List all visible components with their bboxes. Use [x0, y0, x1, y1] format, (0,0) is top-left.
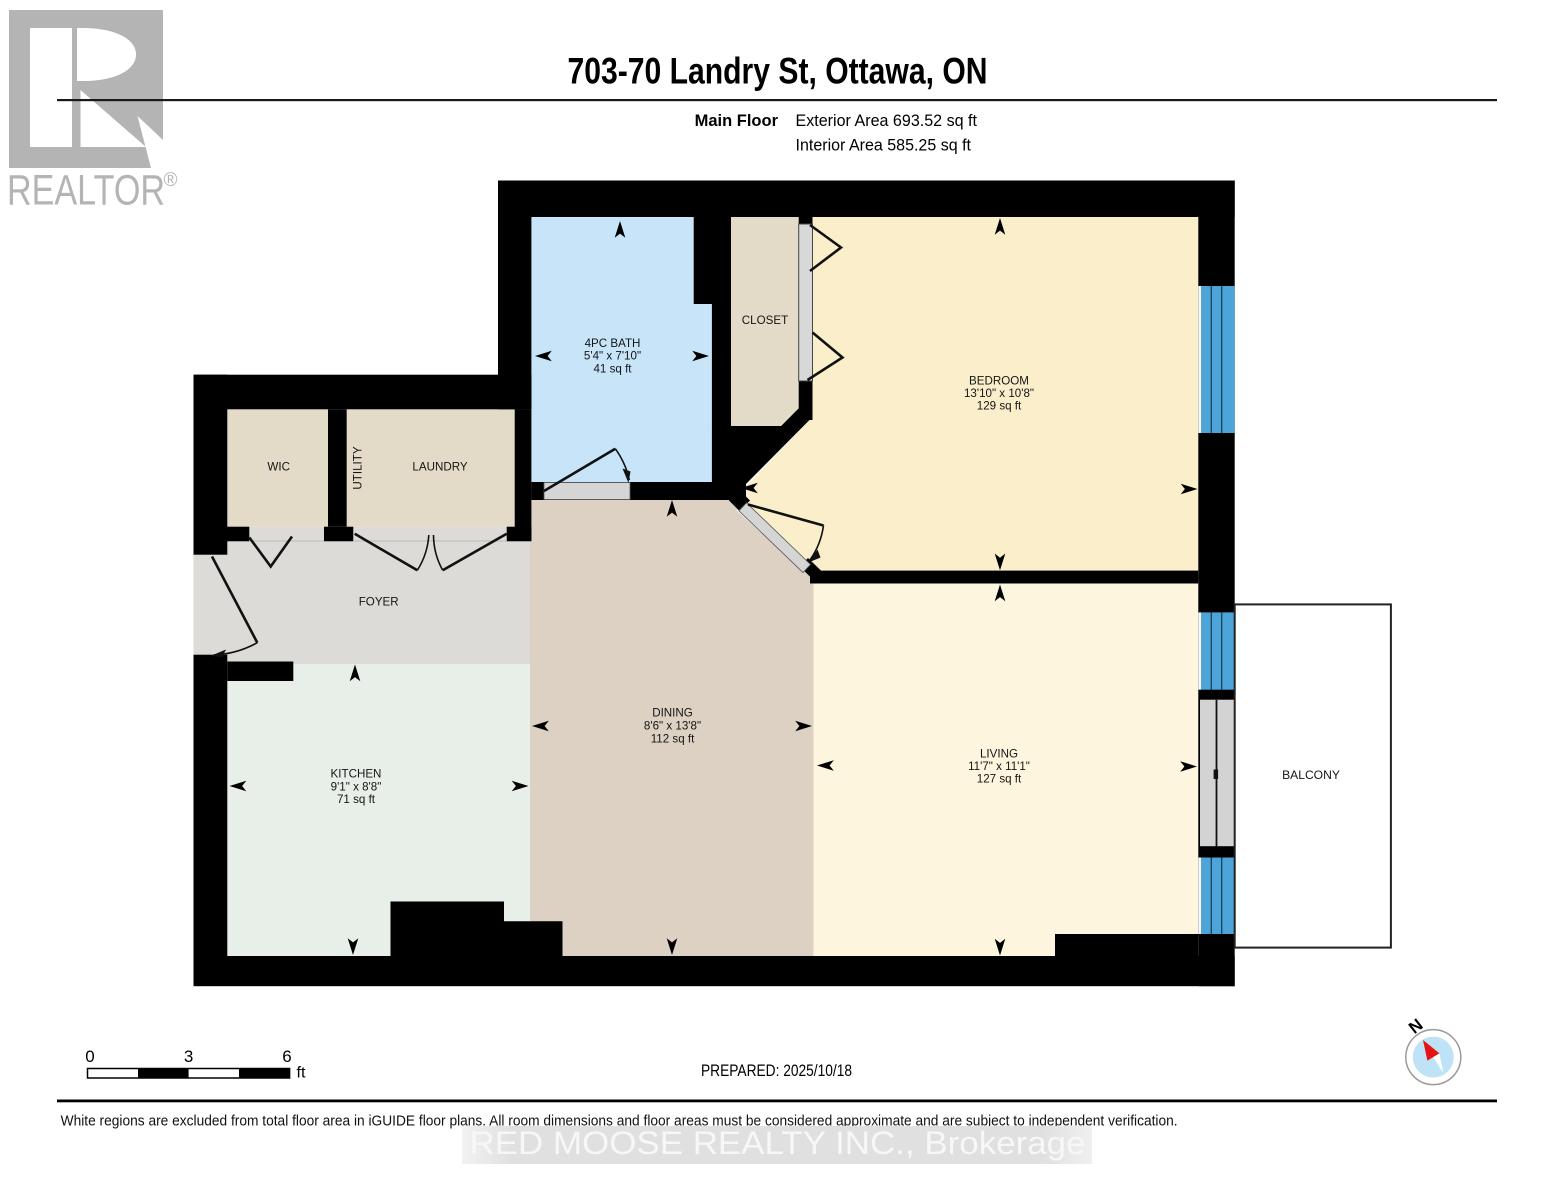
- svg-text:8'6" x 13'8": 8'6" x 13'8": [644, 720, 701, 733]
- svg-text:127 sq ft: 127 sq ft: [977, 773, 1022, 786]
- svg-text:Exterior Area 693.52 sq ft: Exterior Area 693.52 sq ft: [796, 112, 978, 130]
- svg-text:9'1" x 8'8": 9'1" x 8'8": [331, 780, 382, 793]
- svg-text:BEDROOM: BEDROOM: [969, 374, 1029, 387]
- svg-text:4PC BATH: 4PC BATH: [585, 337, 641, 350]
- svg-text:41 sq ft: 41 sq ft: [593, 362, 632, 375]
- svg-text:®: ®: [164, 170, 178, 191]
- svg-text:KITCHEN: KITCHEN: [331, 768, 382, 781]
- svg-text:6: 6: [282, 1047, 291, 1066]
- svg-text:WIC: WIC: [267, 461, 290, 474]
- svg-text:5'4" x 7'10": 5'4" x 7'10": [584, 350, 641, 363]
- svg-text:Main Floor: Main Floor: [695, 112, 779, 130]
- svg-text:Interior Area 585.25 sq ft: Interior Area 585.25 sq ft: [796, 137, 972, 155]
- svg-text:RED MOOSE REALTY INC., Brokera: RED MOOSE REALTY INC., Brokerage: [470, 1125, 1086, 1161]
- svg-text:129 sq ft: 129 sq ft: [977, 399, 1022, 412]
- svg-text:LIVING: LIVING: [980, 747, 1018, 760]
- svg-text:PREPARED: 2025/10/18: PREPARED: 2025/10/18: [701, 1062, 852, 1080]
- svg-text:CLOSET: CLOSET: [742, 314, 788, 327]
- svg-text:BALCONY: BALCONY: [1282, 768, 1340, 782]
- svg-text:0: 0: [85, 1047, 94, 1066]
- svg-text:703-70 Landry St, Ottawa, ON: 703-70 Landry St, Ottawa, ON: [568, 51, 988, 92]
- svg-text:71 sq ft: 71 sq ft: [337, 793, 376, 806]
- svg-text:ft: ft: [297, 1065, 306, 1082]
- svg-text:UTILITY: UTILITY: [351, 446, 364, 489]
- svg-text:DINING: DINING: [652, 707, 693, 720]
- svg-text:FOYER: FOYER: [359, 596, 399, 609]
- svg-text:11'7" x 11'1": 11'7" x 11'1": [968, 760, 1030, 773]
- svg-text:13'10" x 10'8": 13'10" x 10'8": [964, 387, 1034, 400]
- svg-text:REALTOR: REALTOR: [7, 167, 165, 215]
- svg-text:LAUNDRY: LAUNDRY: [412, 461, 467, 474]
- svg-text:112 sq ft: 112 sq ft: [651, 732, 695, 745]
- svg-text:3: 3: [184, 1047, 193, 1066]
